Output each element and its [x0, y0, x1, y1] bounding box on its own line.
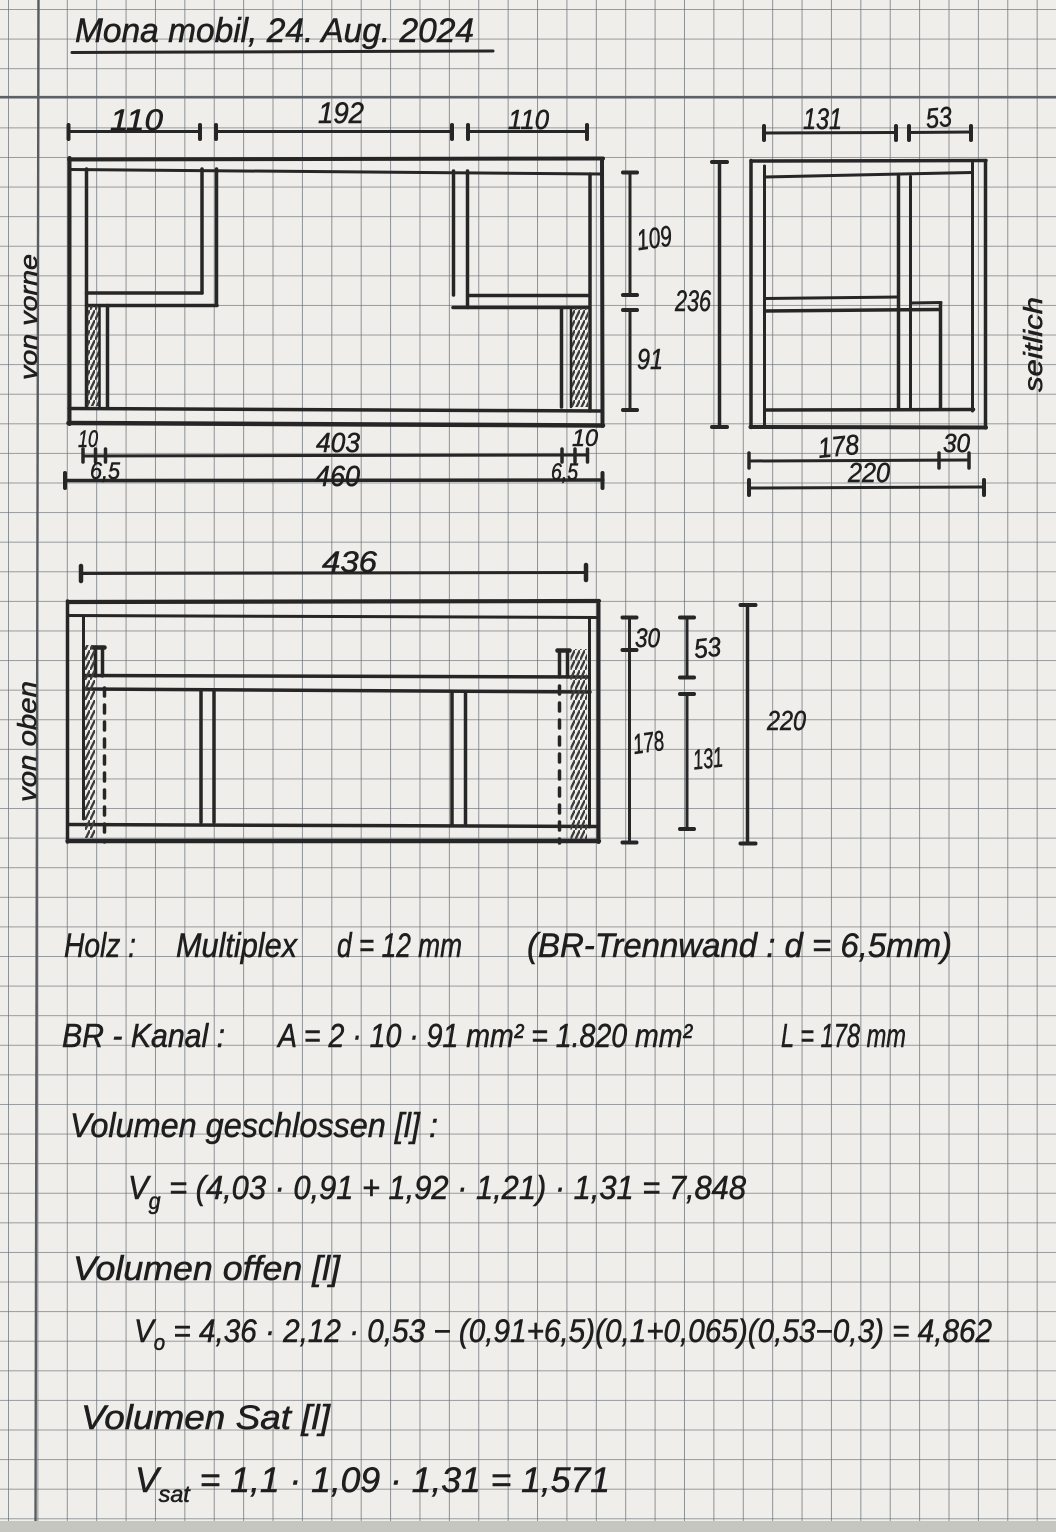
- svg-text:Volumen geschlossen [l] :: Volumen geschlossen [l] :: [70, 1107, 438, 1145]
- svg-text:6,5: 6,5: [90, 458, 121, 485]
- svg-text:von vorne: von vorne: [16, 254, 43, 380]
- svg-text:403: 403: [316, 427, 360, 458]
- svg-text:seitlich: seitlich: [1018, 297, 1048, 392]
- svg-text:Vg = (4,03 · 0,91 + 1,92 · 1,2: Vg = (4,03 · 0,91 + 1,92 · 1,21) · 1,31 …: [128, 1169, 747, 1214]
- svg-text:Vo = 4,36 · 2,12 · 0,53 − (0,9: Vo = 4,36 · 2,12 · 0,53 − (0,91+6,5)(0,1…: [134, 1313, 992, 1355]
- svg-text:220: 220: [766, 705, 806, 736]
- svg-text:Volumen offen [l]: Volumen offen [l]: [73, 1250, 342, 1288]
- svg-text:30: 30: [943, 428, 971, 458]
- svg-text:220: 220: [847, 457, 890, 488]
- svg-text:110: 110: [110, 104, 163, 137]
- svg-text:Multiplex: Multiplex: [176, 927, 298, 965]
- svg-text:110: 110: [508, 104, 549, 135]
- svg-text:131: 131: [803, 103, 842, 136]
- svg-text:von oben: von oben: [12, 681, 42, 802]
- svg-text:6,5: 6,5: [551, 459, 579, 486]
- svg-text:236: 236: [674, 285, 711, 318]
- svg-text:(BR-Trennwand : d = 6,5mm): (BR-Trennwand : d = 6,5mm): [527, 927, 952, 965]
- svg-text:30: 30: [635, 623, 660, 653]
- svg-text:53: 53: [693, 632, 723, 665]
- svg-text:Mona mobil, 24. Aug. 2024: Mona mobil, 24. Aug. 2024: [75, 12, 474, 50]
- svg-text:91: 91: [637, 344, 663, 376]
- svg-text:Holz :: Holz :: [64, 927, 136, 965]
- svg-text:178: 178: [631, 725, 666, 760]
- svg-text:192: 192: [318, 97, 364, 130]
- svg-text:53: 53: [924, 101, 953, 134]
- svg-text:Volumen Sat [l]: Volumen Sat [l]: [81, 1399, 332, 1437]
- svg-text:10: 10: [572, 425, 599, 452]
- svg-text:10: 10: [78, 426, 98, 453]
- svg-text:BR - Kanal :: BR - Kanal :: [62, 1017, 225, 1054]
- svg-text:A = 2 · 10 · 91 mm² = 1.820 mm: A = 2 · 10 · 91 mm² = 1.820 mm²: [276, 1017, 693, 1054]
- svg-text:109: 109: [635, 221, 674, 258]
- svg-text:Vsat = 1,1 · 1,09 · 1,31 = 1,5: Vsat = 1,1 · 1,09 · 1,31 = 1,571: [135, 1461, 610, 1507]
- svg-text:460: 460: [315, 461, 360, 493]
- svg-text:436: 436: [322, 546, 377, 579]
- svg-text:L = 178 mm: L = 178 mm: [781, 1017, 906, 1054]
- svg-text:131: 131: [691, 742, 724, 776]
- svg-text:d = 12 mm: d = 12 mm: [337, 927, 462, 965]
